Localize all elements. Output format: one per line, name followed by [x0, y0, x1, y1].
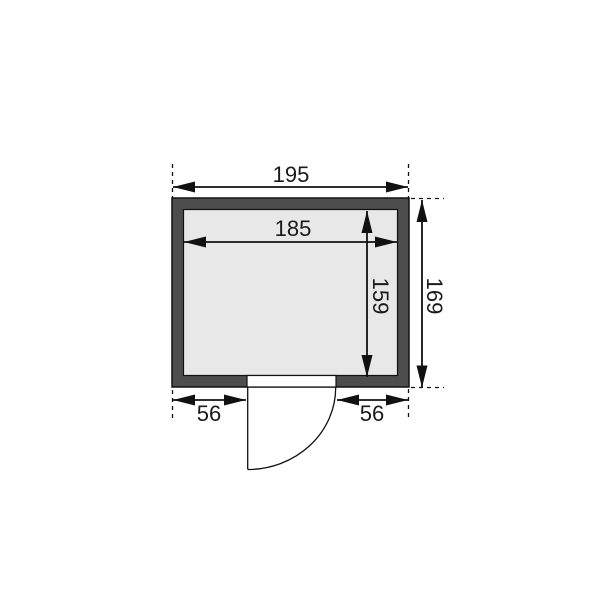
arrow-right-icon — [386, 395, 408, 406]
dim-door-right-label: 56 — [360, 401, 384, 426]
door-opening — [247, 376, 336, 388]
dim-inner-depth-label: 159 — [368, 278, 393, 315]
arrow-down-icon — [417, 366, 428, 388]
arrow-right-icon — [386, 182, 408, 193]
floor-plan-diagram: 195 185 159 169 56 56 — [0, 0, 609, 600]
dim-outer-width-label: 195 — [273, 162, 310, 187]
arrow-up-icon — [417, 200, 428, 222]
floor-plan-svg: 195 185 159 169 56 56 — [0, 0, 609, 600]
dim-outer-depth-label: 169 — [422, 278, 447, 315]
arrow-left-icon — [173, 395, 195, 406]
arrow-right-icon — [224, 395, 246, 406]
arrow-left-icon — [337, 395, 359, 406]
dim-door-left-label: 56 — [197, 401, 221, 426]
door-swing-arc — [248, 387, 336, 469]
dim-inner-width-label: 185 — [275, 216, 312, 241]
arrow-left-icon — [173, 182, 195, 193]
